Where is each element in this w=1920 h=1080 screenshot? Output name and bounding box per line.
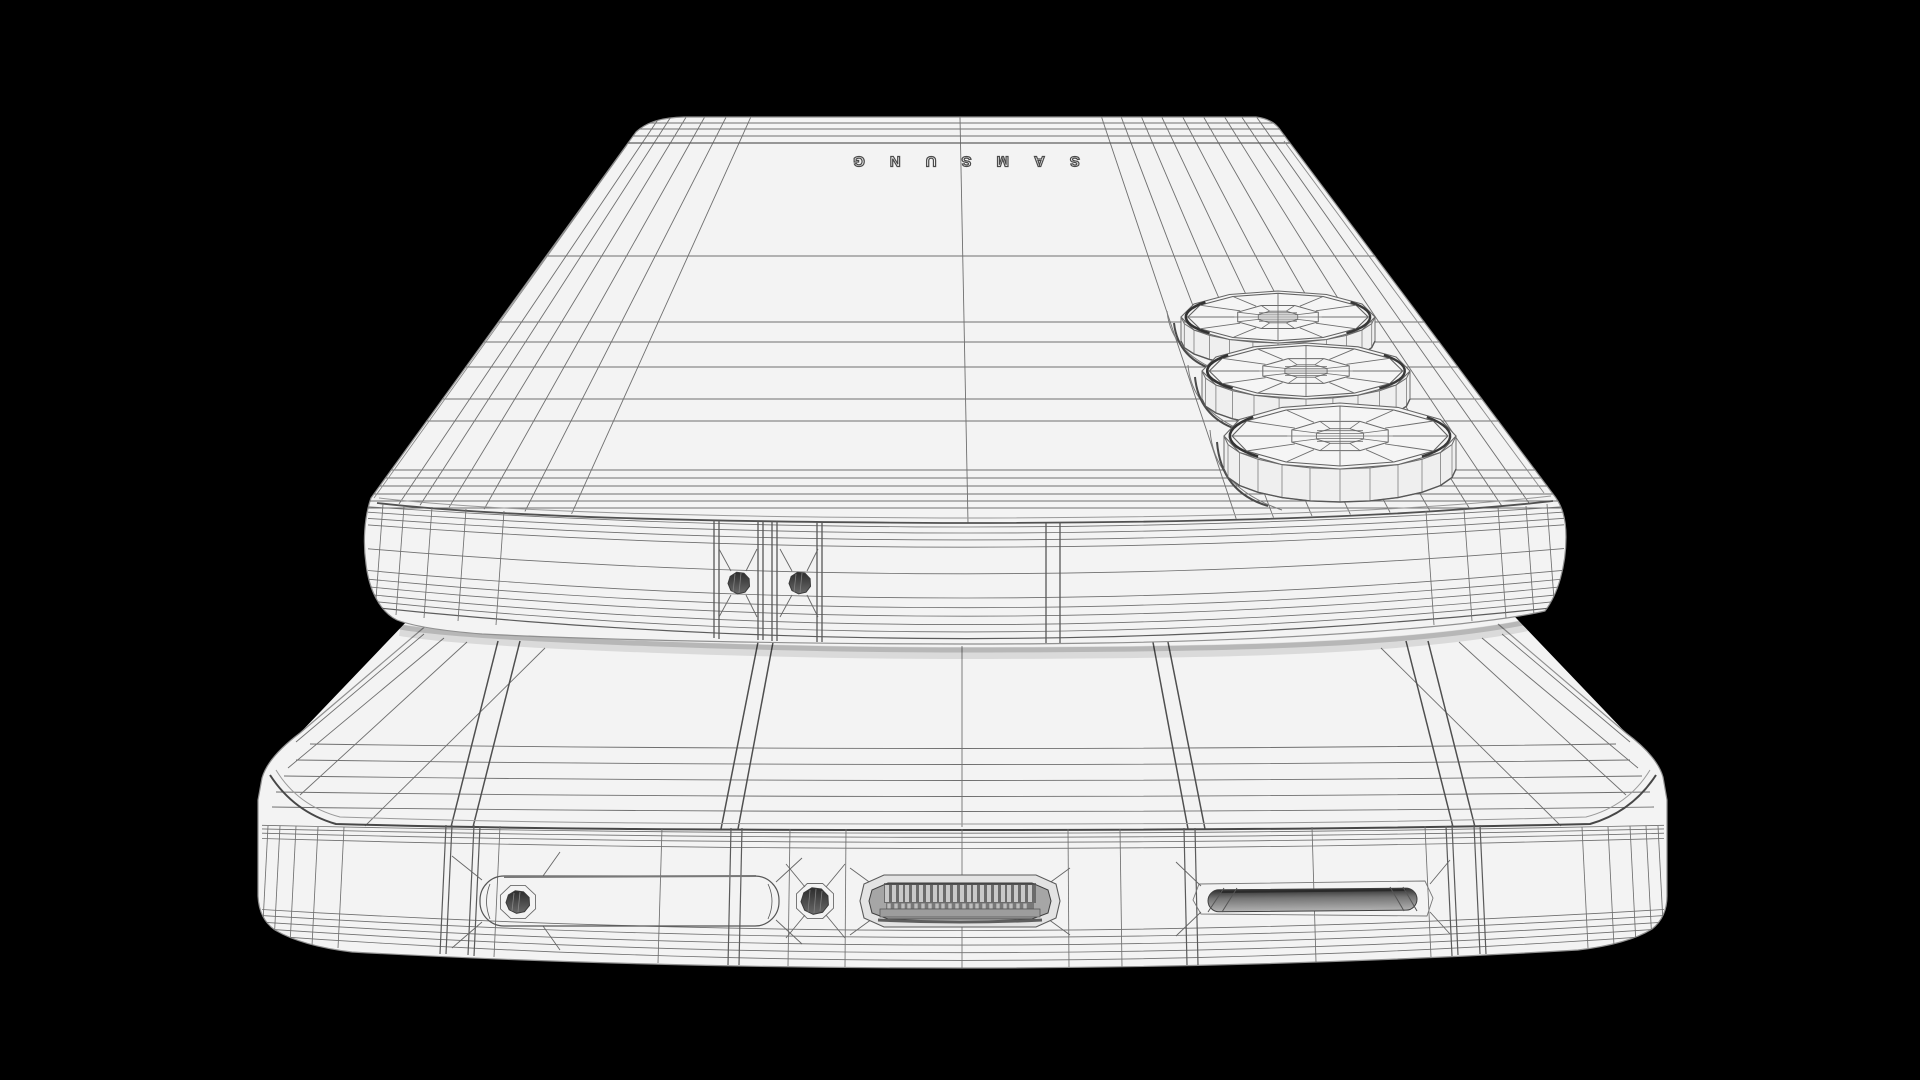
svg-text:SAMSUNG: SAMSUNG bbox=[828, 153, 1080, 170]
